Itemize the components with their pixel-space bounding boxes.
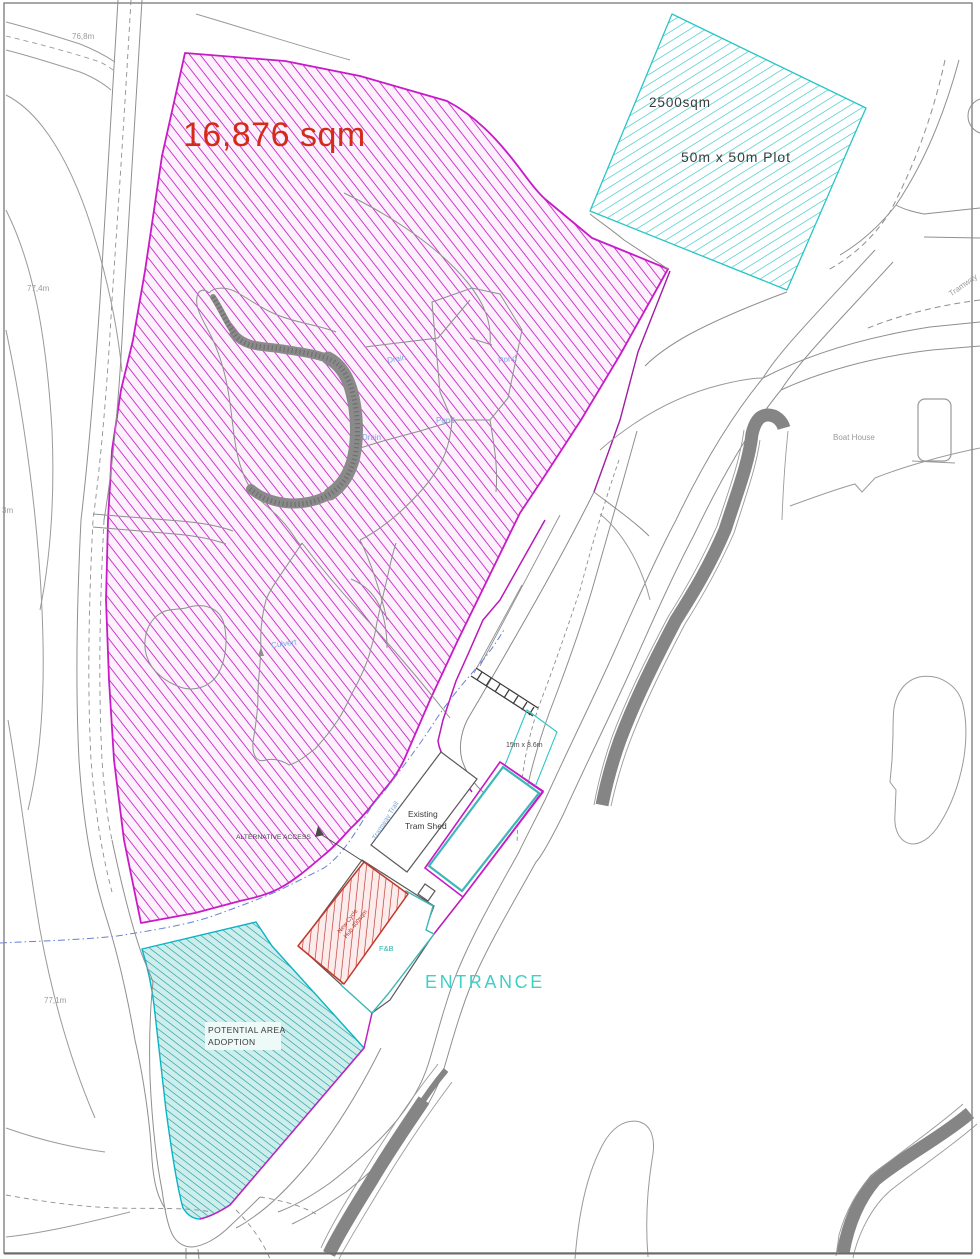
svg-text:ADOPTION: ADOPTION xyxy=(208,1037,256,1047)
svg-text:2500sqm: 2500sqm xyxy=(649,95,711,110)
svg-text:Tram Shed: Tram Shed xyxy=(405,821,447,831)
svg-text:Existing: Existing xyxy=(408,809,438,819)
svg-text:50m x 50m Plot: 50m x 50m Plot xyxy=(681,149,791,165)
svg-text:Boat House: Boat House xyxy=(833,433,875,442)
svg-text:16,876 sqm: 16,876 sqm xyxy=(183,116,366,154)
svg-text:15m x 8.6m: 15m x 8.6m xyxy=(506,742,543,749)
svg-text:Pond: Pond xyxy=(436,416,455,425)
svg-text:77,1m: 77,1m xyxy=(44,996,67,1005)
svg-text:ENTRANCE: ENTRANCE xyxy=(425,972,545,992)
svg-text:Drain: Drain xyxy=(362,433,381,442)
svg-text:76,8m: 76,8m xyxy=(72,32,95,41)
svg-text:POTENTIAL AREA: POTENTIAL AREA xyxy=(208,1025,286,1035)
svg-text:ALTERNATIVE ACCESS: ALTERNATIVE ACCESS xyxy=(236,834,311,841)
svg-text:77,4m: 77,4m xyxy=(27,284,50,293)
svg-text:F&B: F&B xyxy=(379,944,394,953)
